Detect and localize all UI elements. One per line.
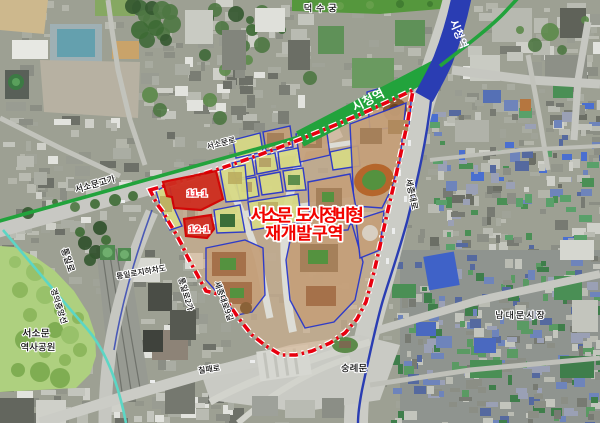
svg-text:11-1: 11-1 <box>187 188 208 200</box>
svg-text:12-1: 12-1 <box>188 224 209 236</box>
